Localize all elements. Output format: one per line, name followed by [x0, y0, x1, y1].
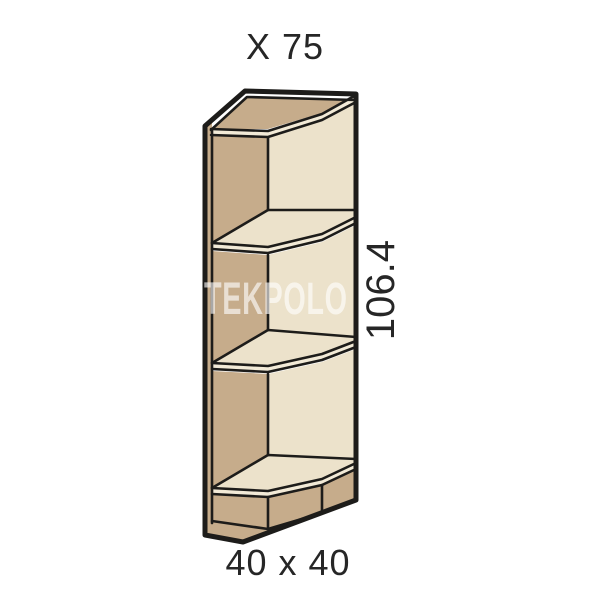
product-diagram-page: TEKPOLO X 75 106.4 40 x 40 [0, 0, 600, 600]
corner-shelf-diagram [0, 0, 600, 600]
